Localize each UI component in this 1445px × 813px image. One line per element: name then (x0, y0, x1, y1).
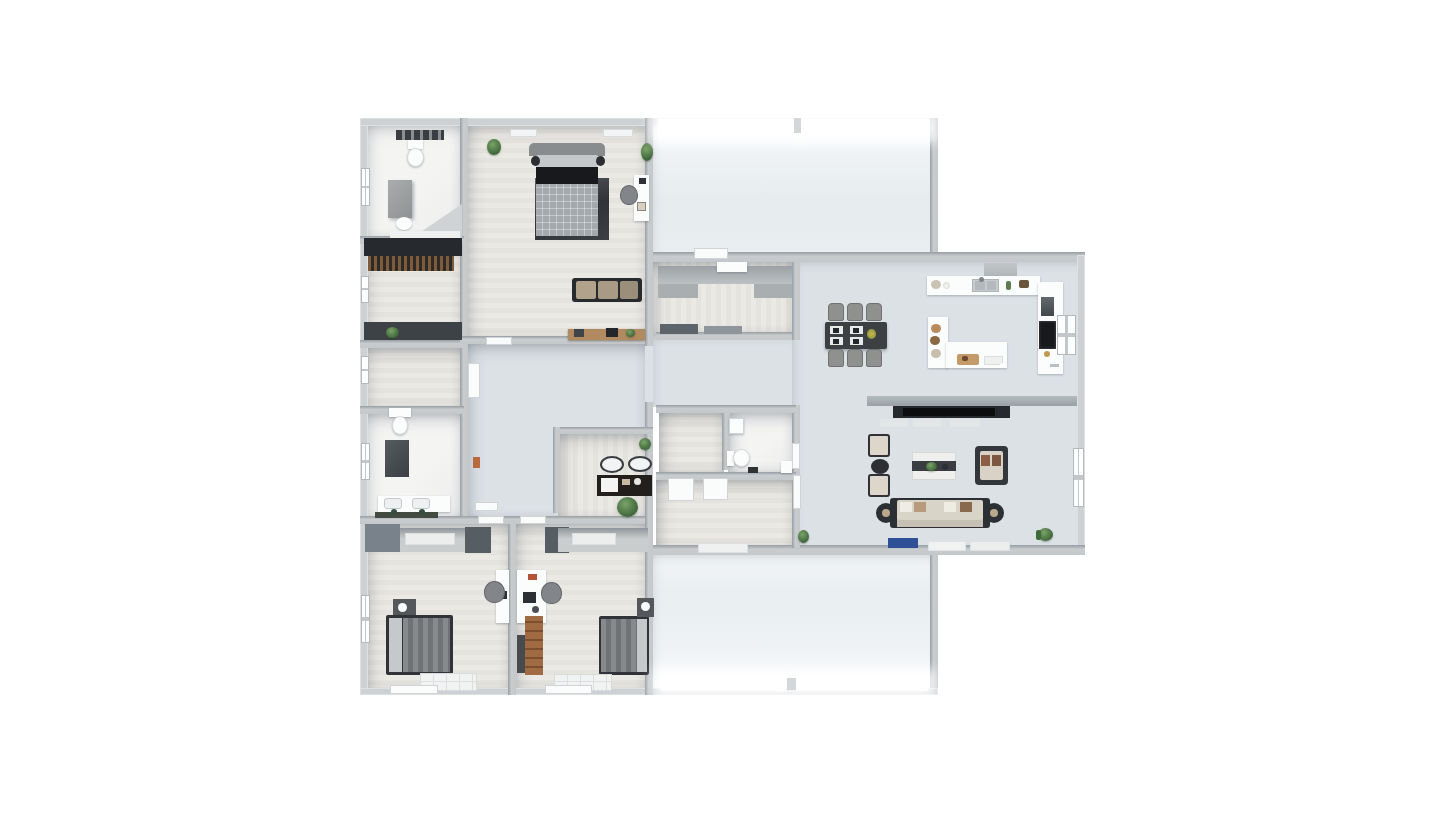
vanity-paper (601, 478, 618, 492)
powder-sink (729, 418, 744, 434)
island-bread-board (957, 354, 979, 365)
wall-vanity-room-left (553, 427, 560, 513)
vanity-bowl (634, 478, 641, 485)
bedroom3-lamp (398, 603, 407, 612)
bedroom3-door (390, 685, 438, 694)
garage-door-2 (801, 119, 930, 136)
island-plate-2 (930, 336, 940, 345)
kitchen-faucet (979, 277, 984, 282)
sofa-pillow-4 (960, 502, 972, 512)
cooktop (1039, 321, 1056, 349)
patio-door-2 (796, 676, 928, 691)
counter-green-bottle (1006, 281, 1011, 290)
dining-chair-bottom-2 (847, 349, 863, 367)
floor-patio (651, 553, 932, 690)
garage-door-pillar (794, 118, 801, 133)
floor-laundry-room (364, 346, 462, 408)
powder-paper-holder (781, 461, 792, 473)
bedroom4-desk-cup (532, 606, 539, 613)
wall-laundry-bottom (360, 406, 464, 414)
side-table-left-top (882, 509, 890, 517)
plate-4 (853, 339, 859, 344)
dining-chair-top-1 (828, 303, 844, 321)
entry-mat-white-2 (970, 541, 1010, 551)
kitchen-sink-bowl-2 (987, 281, 996, 290)
wall-left-column-right (460, 118, 468, 524)
mudroom-open-door-2 (703, 478, 728, 500)
kitchen-sink-bowl-1 (975, 281, 985, 290)
wall-patio-right (930, 555, 938, 695)
vanity-plant-stool (617, 497, 638, 517)
closet-divider-block (465, 527, 491, 553)
vanity-sink-2-bath2 (412, 498, 430, 509)
dining-chair-top-3 (866, 303, 882, 321)
bedroom3-entry-door (478, 516, 504, 524)
bedroom4-wood-ladder (525, 616, 543, 675)
bedroom4-desk-chair (541, 582, 562, 604)
closet1-top-shelf (364, 238, 462, 256)
tall-cabinet-bath2 (385, 440, 409, 477)
window-laundry (361, 356, 369, 384)
page-canvas (0, 0, 1445, 813)
wall-powder-top (656, 405, 796, 413)
table-centerpiece (867, 329, 876, 339)
window-closet1 (361, 276, 369, 303)
closet1-clothes-rail (368, 256, 454, 271)
bedroom3-desk-chair (484, 581, 505, 603)
bedroom4-bed-blanket (601, 619, 637, 672)
window-bath1 (361, 168, 370, 206)
bedroom4-desk-books (528, 574, 537, 580)
bedroom3-bed-pillows (389, 618, 402, 672)
tv-half-wall (867, 396, 1077, 406)
floor-plan-render (360, 118, 1085, 695)
floor-hall-closet (659, 411, 724, 472)
window-bedroom3 (361, 595, 370, 643)
dresser-item-1 (574, 329, 584, 337)
vanity-edge-bath2 (375, 512, 438, 518)
plant-primary-right (641, 143, 653, 161)
flex-room-door-bottom (475, 502, 498, 511)
closet2-shelf-right (754, 284, 792, 298)
dining-chair-bottom-3 (866, 349, 882, 367)
bedroom4-lamp (641, 602, 650, 611)
faucet-1-bath2 (391, 509, 397, 515)
window-kitchen (1057, 315, 1076, 355)
console-mat-2 (913, 419, 941, 427)
toilet-bowl-bath1 (407, 148, 424, 167)
wall-garage-right (930, 118, 938, 262)
living-left-plant (798, 530, 809, 543)
bed-quilt-primary (536, 184, 598, 236)
living-corner-bottle (1036, 530, 1041, 540)
entry-mat-blue (888, 538, 918, 548)
entry-mat-white-1 (928, 541, 966, 551)
desk-chair-primary (620, 185, 638, 205)
sconce-right (596, 156, 605, 166)
dining-chair-bottom-1 (828, 349, 844, 367)
plate-3 (833, 339, 839, 344)
island-dish (1000, 363, 1005, 368)
wall-bedroom-divider (508, 524, 516, 695)
faucet-2-bath2 (419, 509, 425, 515)
mudroom-open-door-1 (668, 478, 694, 501)
bench-cushion-1 (576, 281, 596, 299)
sink-bath1 (396, 217, 412, 230)
sofa-pillow-1 (900, 502, 912, 512)
tv-flat (903, 408, 995, 416)
counter-cutting-board (1019, 280, 1029, 288)
dresser-plant (626, 329, 635, 337)
wall-right-outer (1077, 255, 1085, 555)
vanity-sink-1-bath2 (384, 498, 402, 509)
bench-cushion-3 (620, 281, 638, 299)
bench-cushion-2 (598, 281, 618, 299)
accent-chair-2 (868, 474, 890, 497)
wall-powder-block-right-a (792, 262, 800, 340)
bedroom4-entry-door (520, 516, 546, 524)
towel-rack (396, 130, 444, 140)
console-mat-3 (950, 419, 980, 427)
shower-ledge-bath1 (390, 231, 460, 238)
wall-vanity-room-top (553, 427, 653, 434)
bedroom3-closet-shadow (365, 524, 400, 552)
powder-waste-bin (748, 467, 758, 473)
desk-photo (637, 202, 646, 211)
sofa-pillow-2 (914, 502, 926, 512)
vent-primary-1 (510, 129, 537, 137)
desk-item-dark (639, 178, 646, 184)
armchair-pillow-1 (981, 455, 990, 466)
vanity-tray (622, 479, 630, 485)
sofa-seat-edge (897, 520, 983, 527)
armchair-pillow-2 (992, 455, 1001, 466)
counter-plate-1 (931, 280, 941, 289)
plate-1 (833, 328, 839, 333)
closet1-plant (386, 327, 399, 338)
island-plate-3 (931, 349, 941, 358)
island-plate-1 (931, 324, 941, 333)
mudroom-mat (698, 543, 748, 553)
bedroom4-bed-pillows (637, 619, 647, 672)
closet2-storage-box (717, 262, 747, 272)
dining-chair-top-2 (847, 303, 863, 321)
door-primary-bedroom (486, 337, 512, 345)
wall-oven (1041, 297, 1054, 316)
vanity-mirror-2 (628, 456, 652, 472)
coffee-table-dish (942, 464, 948, 470)
bed-pillows-primary (536, 155, 598, 167)
vanity-cabinet-bath1 (388, 180, 412, 218)
bed-duvet-dark-primary (536, 167, 598, 184)
patio-door-pillar (787, 678, 796, 690)
flex-room-open-door (468, 363, 480, 398)
cooktop-knob (1044, 351, 1050, 357)
accent-chair-1 (868, 434, 890, 457)
vent-primary-2 (603, 129, 633, 137)
bedroom4-door (545, 685, 592, 694)
patio-door-1 (661, 676, 785, 691)
closet2-doorway-shadow-1 (660, 324, 698, 334)
bedroom3-bed-blanket (403, 618, 450, 672)
bedroom3-closet-linens (405, 533, 455, 545)
powder-toilet-bowl (733, 449, 750, 467)
dresser-item-2 (606, 328, 618, 337)
plant-primary-left (487, 139, 501, 155)
accent-round-table (871, 459, 889, 474)
door-garage-to-closet (694, 248, 728, 259)
flex-room-door-handle (473, 457, 480, 468)
closet2-doorway-shadow-2 (704, 326, 742, 334)
toilet-bowl-bath2 (392, 416, 408, 435)
hallway-opening-patch (645, 346, 653, 402)
bedroom4-laptop (523, 592, 536, 603)
side-table-right-top (990, 509, 998, 517)
oven-handle (1050, 364, 1059, 367)
island-bread (962, 356, 968, 361)
plate-2 (853, 328, 859, 333)
sofa-pillow-3 (944, 502, 956, 512)
window-bath2 (361, 443, 370, 480)
vanity-mirror-1 (600, 456, 624, 473)
door-living-left-wall (793, 475, 801, 509)
coffee-table-plant (926, 462, 937, 471)
vanity-corner-plant (639, 438, 651, 450)
window-living (1073, 448, 1084, 507)
sconce-left (531, 156, 540, 166)
door-powder-room (792, 443, 800, 469)
counter-plate-2 (943, 282, 950, 289)
floor-hallway (651, 334, 794, 407)
floor-garage (651, 122, 932, 254)
closet1-base-shelf (364, 322, 462, 340)
console-mat-1 (880, 419, 908, 427)
bedroom4-closet-linens (572, 533, 616, 545)
wall-closet1-bottom (360, 340, 464, 348)
closet2-shelf-left (658, 284, 698, 298)
garage-door-1 (658, 119, 794, 136)
